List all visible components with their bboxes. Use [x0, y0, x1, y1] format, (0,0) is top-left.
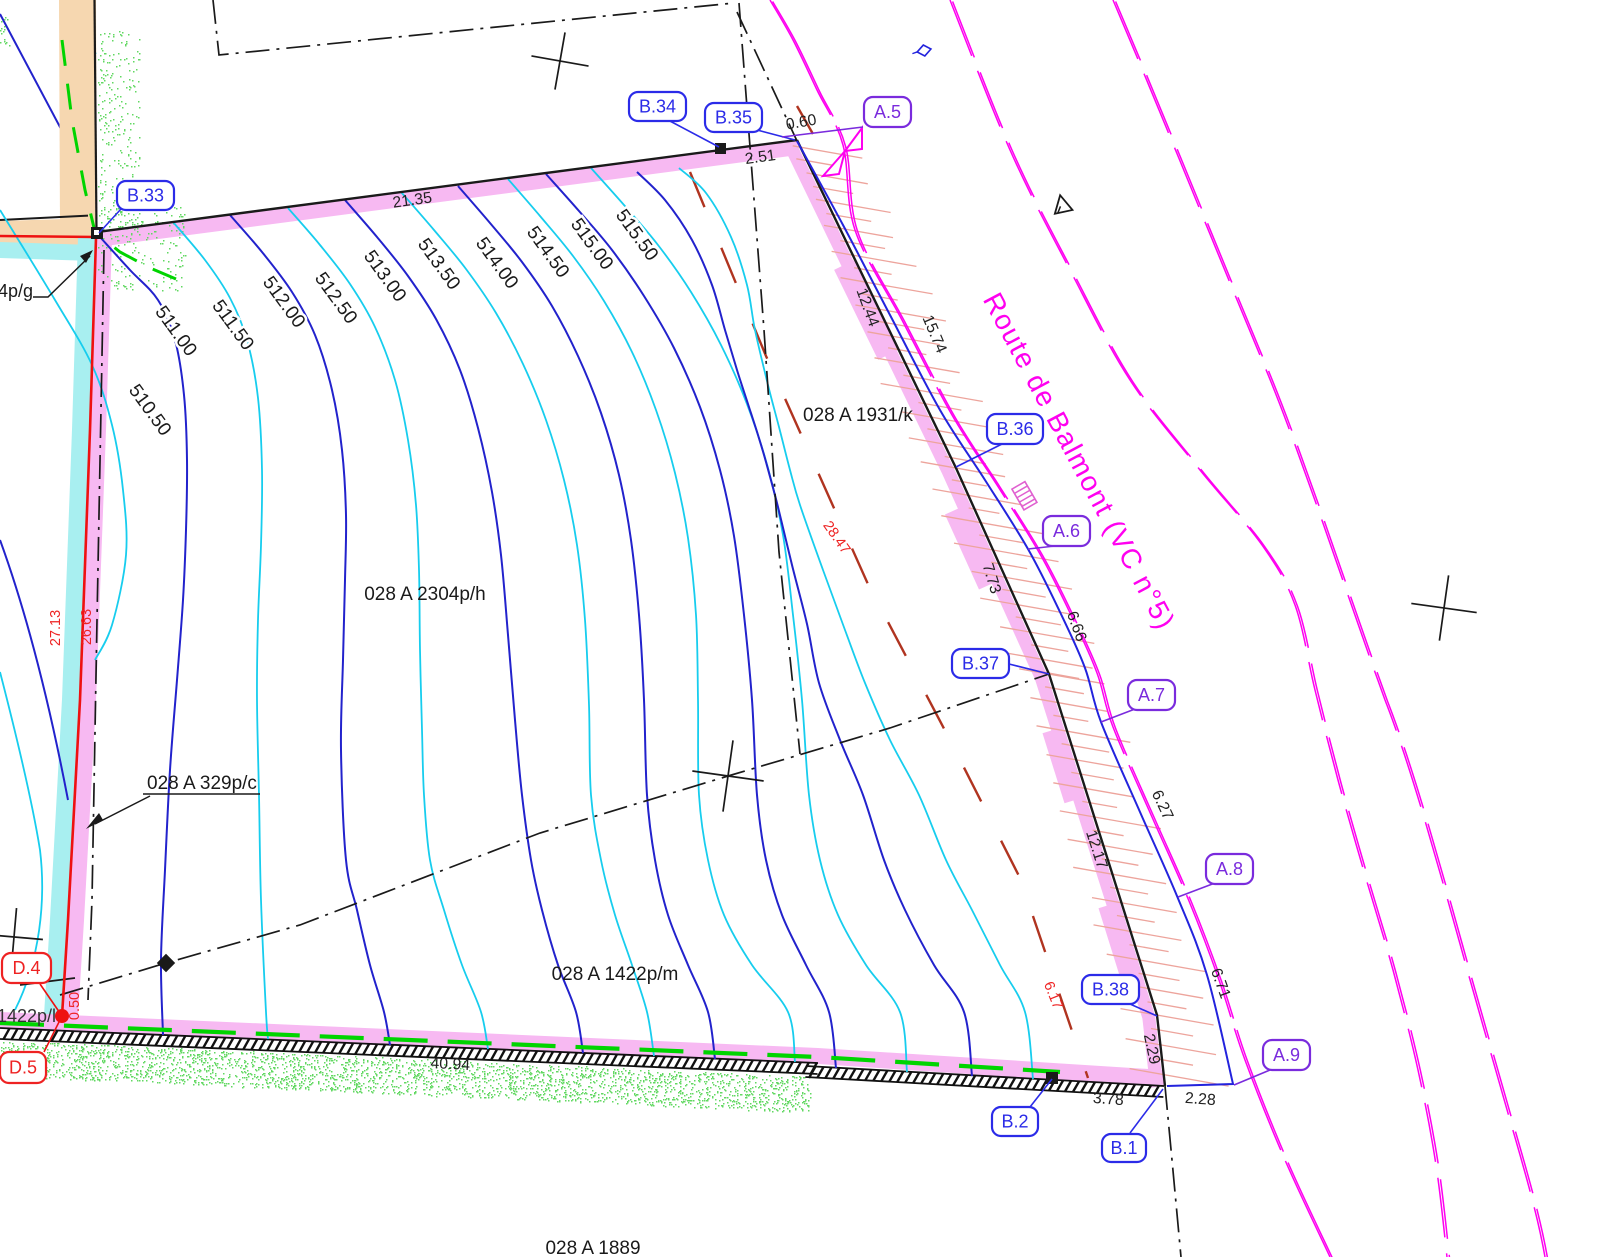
svg-text:4p/g: 4p/g [0, 281, 33, 301]
svg-text:27.13: 27.13 [48, 610, 64, 646]
svg-text:B.38: B.38 [1092, 980, 1129, 1000]
svg-text:028 A 1931/k: 028 A 1931/k [803, 405, 913, 426]
svg-text:B.2: B.2 [1001, 1112, 1028, 1132]
svg-text:028 A 2304p/h: 028 A 2304p/h [364, 584, 486, 605]
svg-text:40.94: 40.94 [430, 1055, 471, 1074]
svg-text:028 A 329p/c: 028 A 329p/c [147, 773, 257, 794]
svg-text:26.63: 26.63 [79, 609, 95, 645]
svg-text:D.4: D.4 [12, 958, 40, 978]
svg-text:A.7: A.7 [1138, 685, 1165, 705]
svg-text:B.36: B.36 [996, 419, 1033, 439]
svg-text:B.35: B.35 [715, 108, 752, 128]
svg-text:2.28: 2.28 [1184, 1090, 1216, 1109]
svg-text:028 A 1422p/m: 028 A 1422p/m [552, 964, 679, 985]
svg-text:A.5: A.5 [874, 102, 901, 122]
svg-text:B.1: B.1 [1110, 1138, 1137, 1158]
svg-text:B.34: B.34 [639, 97, 676, 117]
svg-text:A.8: A.8 [1216, 859, 1243, 879]
svg-text:A.9: A.9 [1273, 1045, 1300, 1065]
svg-text:1422p/l: 1422p/l [0, 1006, 56, 1026]
svg-text:0.50: 0.50 [67, 992, 83, 1020]
svg-text:028 A 1889: 028 A 1889 [545, 1238, 640, 1257]
svg-text:3.78: 3.78 [1092, 1090, 1124, 1109]
svg-text:A.6: A.6 [1053, 521, 1080, 541]
svg-text:D.5: D.5 [9, 1058, 37, 1078]
svg-text:B.33: B.33 [127, 186, 164, 206]
svg-text:B.37: B.37 [962, 654, 999, 674]
